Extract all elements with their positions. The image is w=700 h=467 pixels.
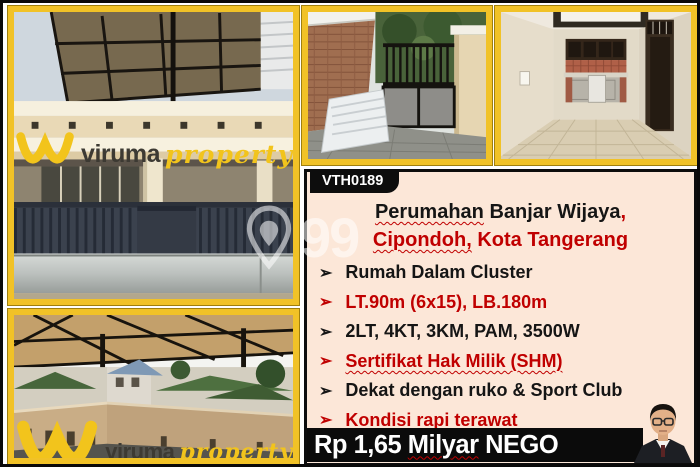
- bullet-arrow-icon: ➢: [319, 413, 332, 429]
- info-panel: VTH0189 Perumahan Banjar Wijaya, Cipondo…: [304, 169, 697, 466]
- photo-rooftop-terrace: viruma property: [8, 309, 299, 464]
- feature-text: Rumah Dalam Cluster: [345, 262, 532, 283]
- bullet-arrow-icon: ➢: [319, 325, 332, 341]
- listing-title: Perumahan Banjar Wijaya, Cipondoh, Kota …: [307, 198, 694, 254]
- feature-text: Dekat dengan ruko & Sport Club: [345, 380, 622, 401]
- feature-text: Sertifikat Hak Milik (SHM): [345, 351, 562, 372]
- feature-item: ➢ 2LT, 4KT, 3KM, PAM, 3500W: [319, 317, 688, 347]
- photo-interior: [495, 6, 697, 165]
- price-bar: Rp 1,65 Milyar NEGO: [307, 428, 643, 462]
- agent-portrait-illustration: [633, 401, 693, 463]
- photo-house-front: viruma property: [8, 6, 299, 305]
- listing-title-line1: Perumahan Banjar Wijaya,: [307, 198, 694, 226]
- feature-text: 2LT, 4KT, 3KM, PAM, 3500W: [345, 321, 579, 342]
- agent-photo: [633, 401, 693, 463]
- listing-code-badge: VTH0189: [310, 169, 399, 193]
- feature-item: ➢ LT.90m (6x15), LB.180m: [319, 288, 688, 318]
- photo-carport-gate: [302, 6, 492, 165]
- interior-illustration: [501, 12, 691, 159]
- feature-item: ➢ Sertifikat Hak Milik (SHM): [319, 347, 688, 377]
- carport-gate-illustration: [308, 12, 486, 159]
- bullet-arrow-icon: ➢: [319, 354, 332, 370]
- rooftop-terrace-illustration: [14, 315, 293, 458]
- bullet-arrow-icon: ➢: [319, 266, 332, 282]
- property-listing-flyer: viruma property: [0, 0, 700, 467]
- house-front-illustration: [14, 12, 293, 299]
- bullet-arrow-icon: ➢: [319, 295, 332, 311]
- feature-text: LT.90m (6x15), LB.180m: [345, 292, 547, 313]
- listing-title-line2: Cipondoh, Kota Tangerang: [307, 226, 694, 254]
- bullet-arrow-icon: ➢: [319, 384, 332, 400]
- feature-item: ➢ Rumah Dalam Cluster: [319, 258, 688, 288]
